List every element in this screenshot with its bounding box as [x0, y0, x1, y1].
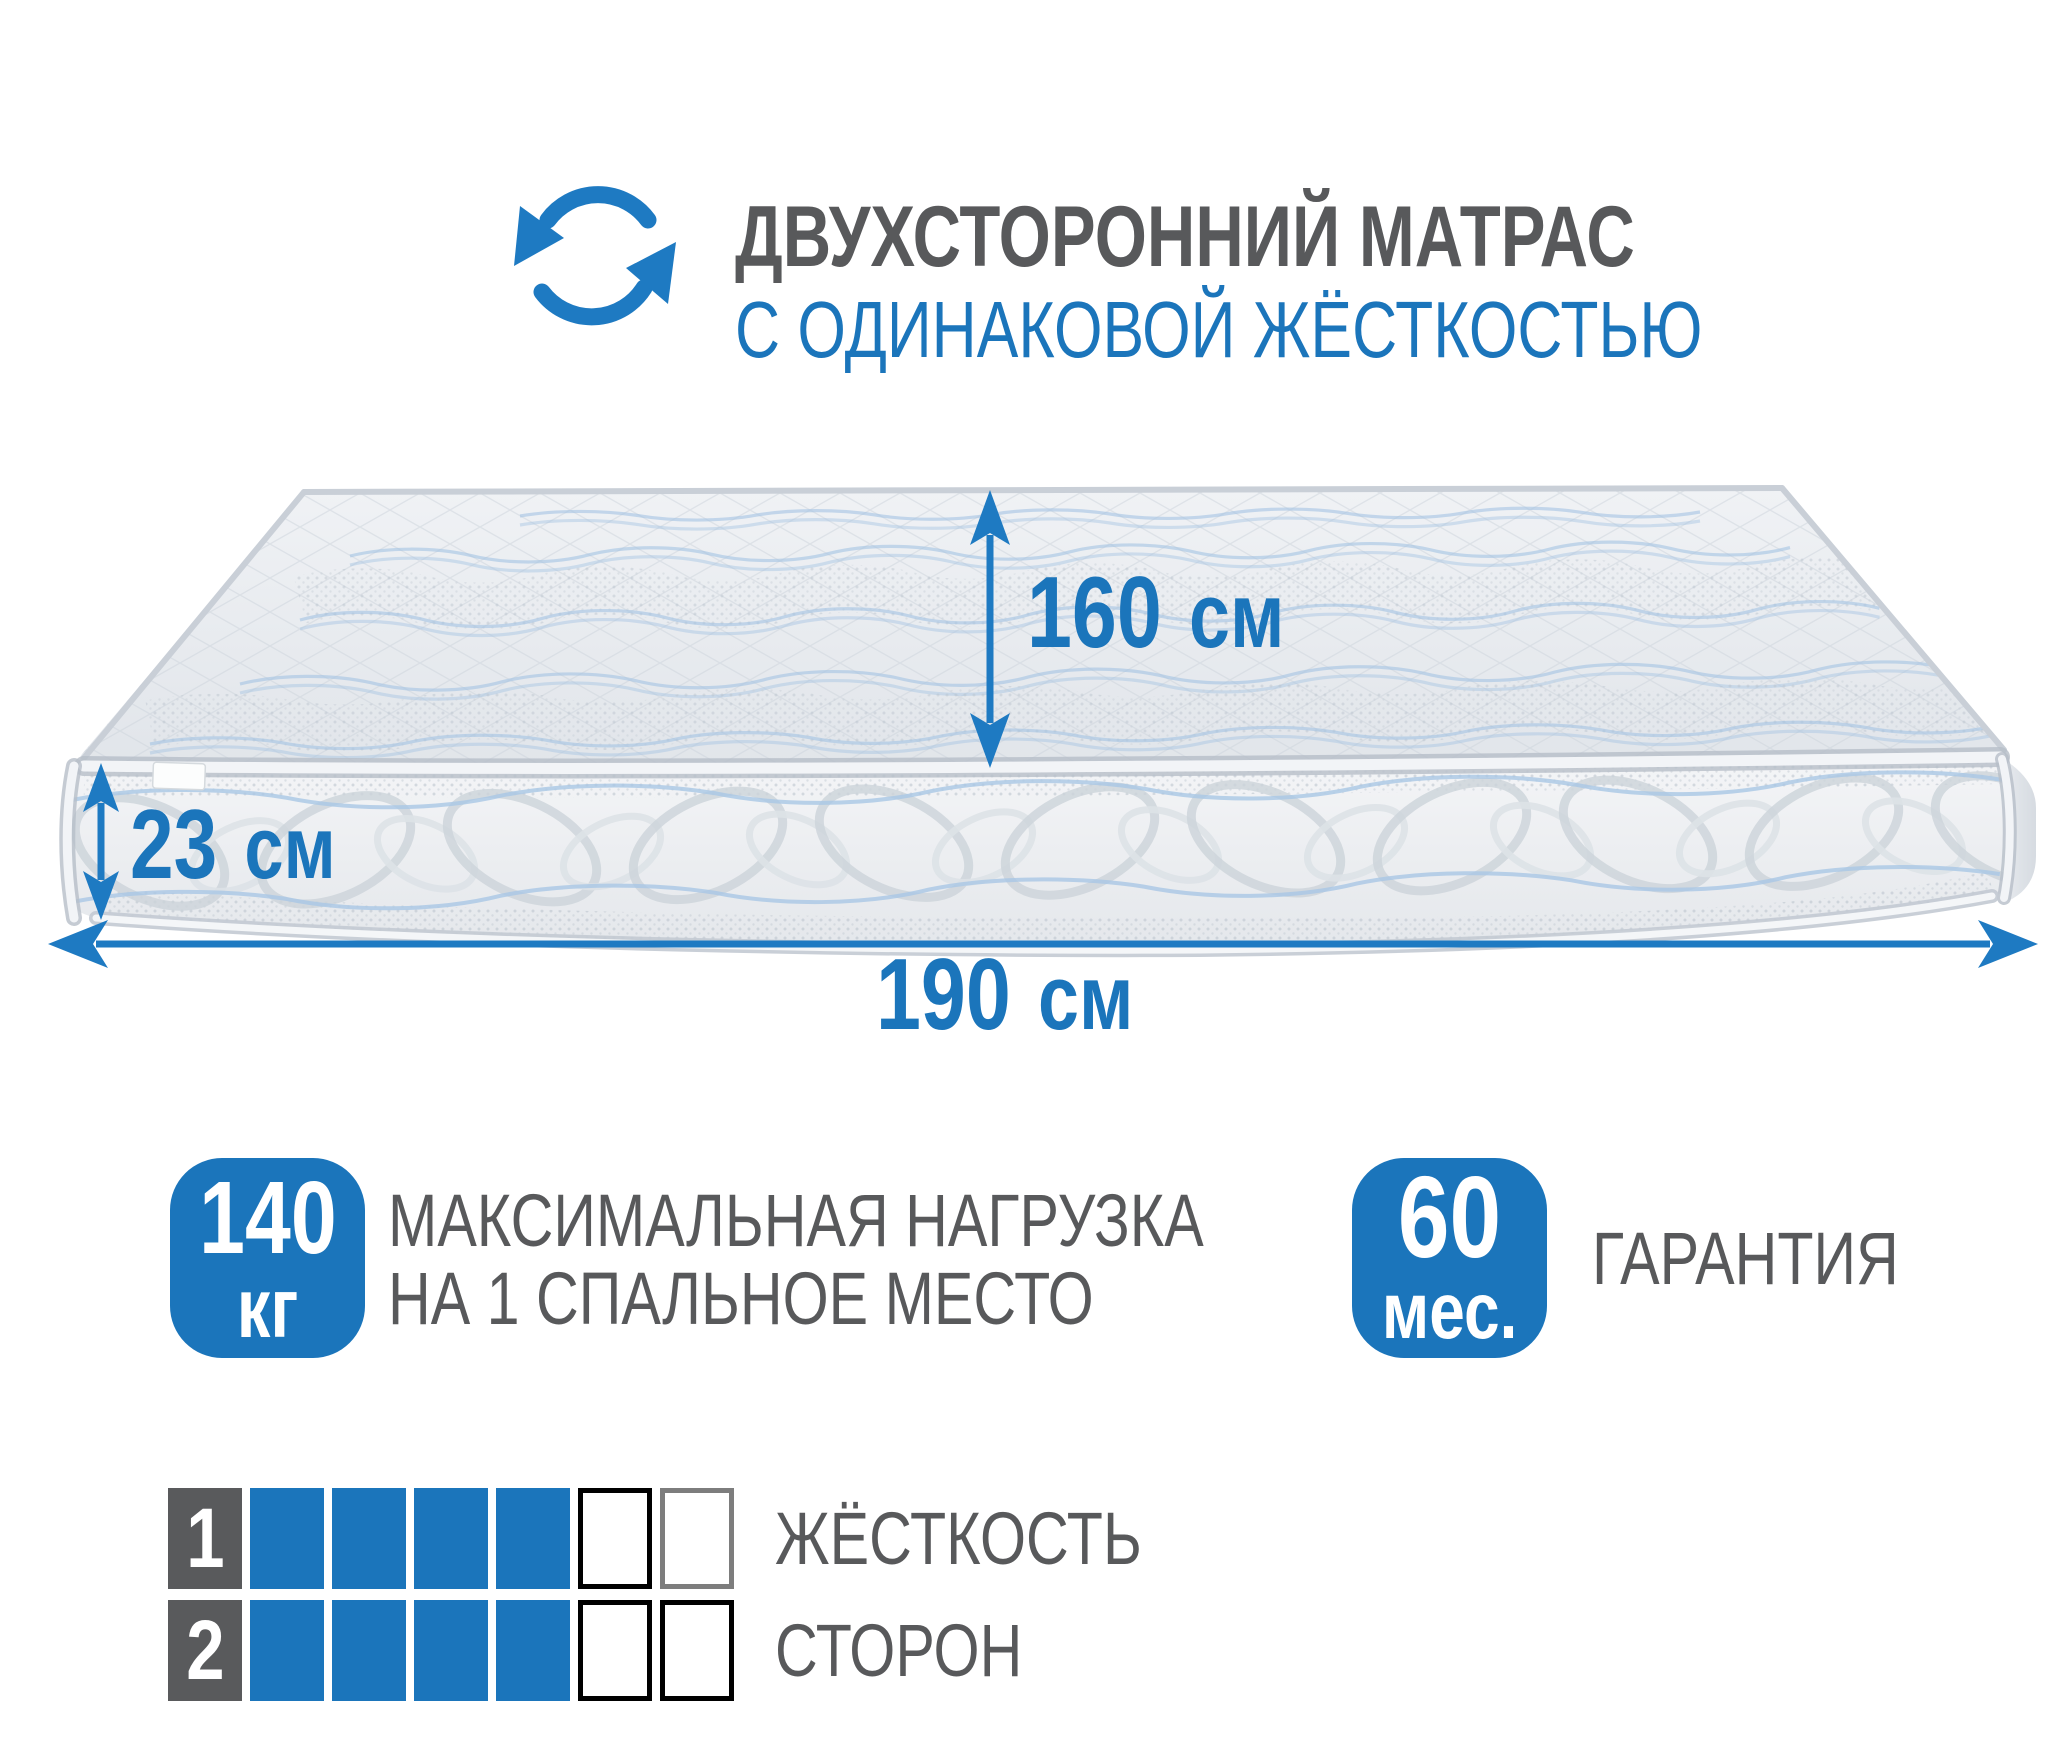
width-dimension-label: 160см — [1027, 556, 1284, 671]
firmness-row: 2 — [168, 1600, 742, 1701]
firmness-cell-filled — [414, 1488, 488, 1589]
length-dimension-label: 190см — [876, 938, 1133, 1053]
length-value: 190 — [876, 939, 1011, 1051]
rotate-icon — [514, 195, 676, 317]
mattress-infographic: ДВУХСТОРОННИЙ МАТРАС С ОДИНАКОВОЙ ЖЁСТКО… — [0, 0, 2048, 1757]
firmness-scale: 12 — [168, 1488, 742, 1712]
firmness-cell-filled — [250, 1488, 324, 1589]
firmness-cell-filled — [414, 1600, 488, 1701]
firmness-cell-empty — [660, 1600, 734, 1701]
firmness-side-number: 1 — [168, 1488, 242, 1589]
length-unit: см — [1038, 947, 1133, 1049]
firmness-cell-filled — [496, 1600, 570, 1701]
firmness-row: 1 — [168, 1488, 742, 1589]
warranty-badge: 60 мес. — [1352, 1158, 1547, 1358]
page-title-line1: ДВУХСТОРОННИЙ МАТРАС — [735, 190, 1702, 284]
firmness-side-number: 2 — [168, 1600, 242, 1701]
max-load-desc-line2: НА 1 СПАЛЬНОЕ МЕСТО — [388, 1260, 1204, 1338]
height-value: 23 — [130, 789, 217, 899]
warranty-unit: мес. — [1382, 1270, 1517, 1352]
firmness-label-line2: СТОРОН — [775, 1614, 1022, 1688]
warranty-label: ГАРАНТИЯ — [1592, 1222, 1899, 1296]
max-load-description: МАКСИМАЛЬНАЯ НАГРУЗКА НА 1 СПАЛЬНОЕ МЕСТ… — [388, 1182, 1204, 1338]
header: ДВУХСТОРОННИЙ МАТРАС С ОДИНАКОВОЙ ЖЁСТКО… — [735, 190, 1702, 374]
firmness-label-line1: ЖЁСТКОСТЬ — [775, 1502, 1142, 1576]
width-value: 160 — [1027, 557, 1162, 669]
firmness-cell-empty — [578, 1600, 652, 1701]
max-load-desc-line1: МАКСИМАЛЬНАЯ НАГРУЗКА — [388, 1182, 1204, 1260]
firmness-cell-empty — [660, 1488, 734, 1589]
firmness-cell-filled — [332, 1488, 406, 1589]
firmness-cell-empty — [578, 1488, 652, 1589]
max-load-badge: 140 кг — [170, 1158, 365, 1358]
height-unit: см — [244, 798, 335, 897]
max-load-value: 140 — [199, 1168, 336, 1268]
mattress-tag — [153, 762, 206, 790]
warranty-value: 60 — [1398, 1164, 1501, 1270]
firmness-cell-filled — [332, 1600, 406, 1701]
firmness-cell-filled — [250, 1600, 324, 1701]
width-unit: см — [1189, 565, 1284, 667]
page-title-line2: С ОДИНАКОВОЙ ЖЁСТКОСТЬЮ — [735, 286, 1702, 374]
height-dimension-label: 23см — [130, 788, 336, 901]
max-load-unit: кг — [237, 1268, 299, 1348]
firmness-cell-filled — [496, 1488, 570, 1589]
